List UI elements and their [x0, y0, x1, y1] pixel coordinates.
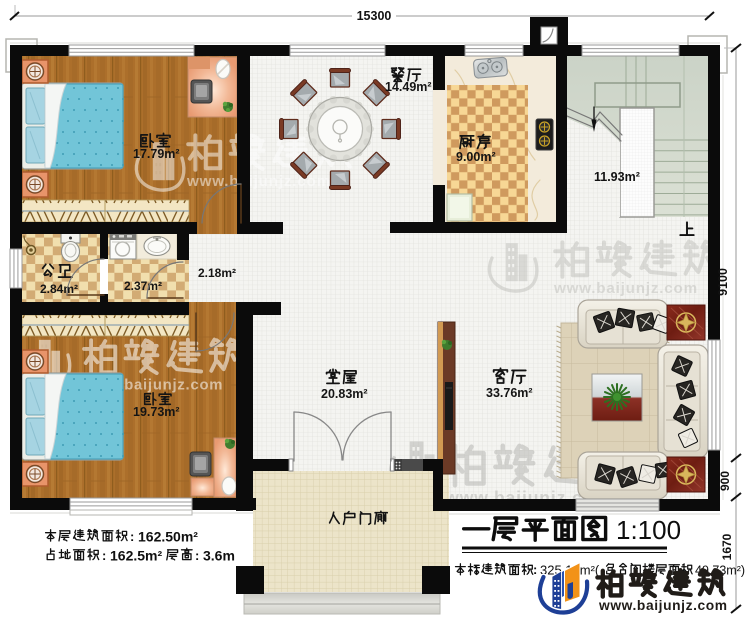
- svg-text:2.84m²: 2.84m²: [40, 282, 78, 296]
- svg-text:www.baijunjz.com: www.baijunjz.com: [598, 598, 728, 613]
- svg-text:162.5m²: 162.5m²: [110, 548, 162, 564]
- svg-text::: :: [195, 548, 199, 563]
- svg-text:900: 900: [718, 471, 732, 491]
- svg-text:19.73m²: 19.73m²: [133, 405, 180, 419]
- svg-text:15300: 15300: [357, 9, 392, 23]
- svg-text:11.93m²: 11.93m²: [594, 170, 640, 184]
- svg-text:20.83m²: 20.83m²: [321, 387, 368, 401]
- svg-text:1670: 1670: [720, 533, 734, 560]
- svg-text:3.6m: 3.6m: [203, 548, 235, 564]
- svg-text:9100: 9100: [716, 268, 730, 296]
- svg-text:9.00m²: 9.00m²: [456, 150, 496, 164]
- svg-text::: :: [130, 529, 134, 544]
- svg-text:www.baijunjz.com: www.baijunjz.com: [553, 280, 698, 297]
- svg-text:14.49m²: 14.49m²: [385, 80, 432, 94]
- svg-text::: :: [533, 562, 537, 577]
- svg-text:2.18m²: 2.18m²: [198, 266, 236, 280]
- svg-text::: :: [102, 548, 106, 563]
- svg-text:1:100: 1:100: [616, 515, 681, 545]
- svg-text:www.baijunjz.com: www.baijunjz.com: [186, 173, 331, 190]
- svg-text:17.79m²: 17.79m²: [133, 147, 180, 161]
- svg-text:2.37m²: 2.37m²: [124, 279, 162, 293]
- svg-text:33.76m²: 33.76m²: [486, 386, 533, 400]
- svg-text:162.50m²: 162.50m²: [138, 529, 198, 545]
